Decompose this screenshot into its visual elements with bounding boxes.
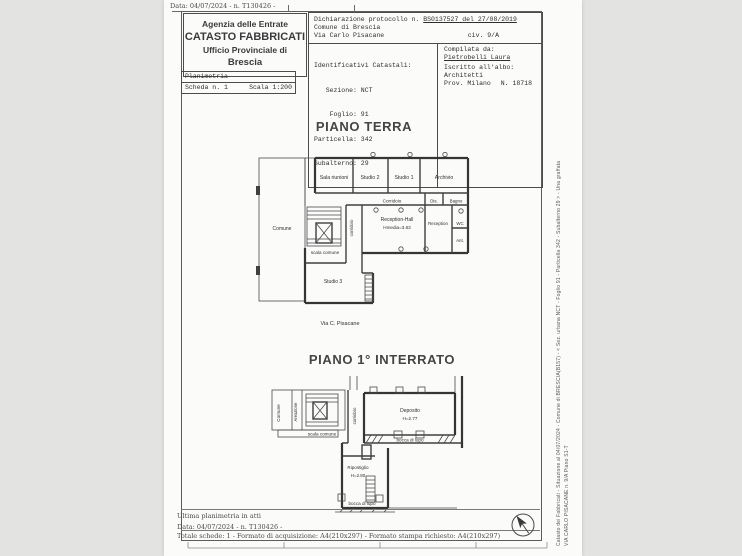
declaration-protocol: BS0137527 del 27/08/2019: [423, 16, 517, 24]
room-label-ripostiglio-height: H=2.80: [351, 473, 366, 478]
room-label-studio3: Studio 3: [324, 279, 343, 285]
identificativi-sezione: Sezione: NCT: [314, 87, 432, 95]
scanned-document-sheet: Data: 04/07/2024 - n. T130426 - Agenzia …: [164, 0, 582, 556]
room-label-archivio: Archivio: [435, 175, 454, 181]
registration-tick: [354, 5, 355, 12]
wall-notch: [256, 266, 260, 275]
room-label-scala-comune: scala comune: [311, 250, 340, 255]
room-label-sala-riunioni: Sala riunioni: [320, 175, 349, 181]
piano-interrato-title: PIANO 1° INTERRATO: [282, 352, 482, 367]
label-bocca-di-lupo-right: bocca di lupo: [396, 438, 424, 443]
room-label-studio2: Studio 2: [360, 175, 379, 181]
room-label-reception-hall: Reception-Hall: [381, 217, 414, 223]
compiler-name: Pietrobelli Laura: [444, 54, 536, 62]
room-label-dis: Dis.: [430, 199, 438, 204]
piano-interrato-floorplan: Comune Areazione scala comune corridoio …: [240, 368, 520, 518]
agency-name: Agenzia delle Entrate: [184, 19, 306, 29]
room-label-scala-comune: scala comune: [308, 432, 337, 437]
registration-tick: [172, 11, 181, 12]
identificativi-title: Identificativi Catastali:: [314, 62, 432, 70]
wall-stubs: [350, 376, 455, 393]
staircase-icon: [306, 394, 338, 426]
scale-ruler: [164, 540, 582, 554]
landing-walls: [305, 158, 315, 206]
staircase-icon: [307, 207, 341, 246]
room-label-studio1: Studio 1: [394, 175, 413, 181]
street-caption: Via C. Pisacane: [320, 321, 359, 327]
office-city: Brescia: [184, 57, 306, 68]
compiler-prov: Prov. Milano: [444, 80, 491, 88]
side-caption-address: VIA CARLO PISACANE n. 9/A Piano S1-T: [564, 445, 570, 546]
street-line: Via Carlo Pisacane: [314, 32, 384, 40]
room-label-ant: Ant.: [456, 238, 464, 243]
comune-line: Comune di Brescia: [314, 24, 380, 32]
room-label-deposito: Deposito: [400, 408, 420, 414]
footer-divider: [181, 509, 540, 510]
side-caption-cadastre: Catasto dei Fabbricati - Situazione al 0…: [556, 161, 562, 546]
scheda-label: Scheda n. 1: [185, 84, 228, 92]
planimetria-box: Planimetria Scheda n. 1 Scala 1:200: [181, 71, 296, 94]
room-label-reception: Reception: [428, 221, 448, 226]
room-label-areazione: Areazione: [293, 402, 298, 422]
declaration-top-section: Dichiarazione protocollo n. BS0137527 de…: [309, 13, 542, 43]
room-label-wc: WC: [456, 221, 463, 226]
room-label-corridoio: Corridoio: [383, 199, 402, 204]
comune-area-outline: [272, 390, 345, 430]
screenshot-root: { "document": { "top_note": "Data: 04/07…: [0, 0, 742, 556]
room-label-corridoio: corridoio: [352, 407, 357, 424]
room-label-deposito-height: H=2.77: [403, 416, 418, 421]
compiler-number: N. 18718: [501, 80, 532, 88]
agency-header-box: Agenzia delle Entrate CATASTO FABBRICATI…: [183, 13, 307, 77]
label-bocca-di-lupo-bottom: bocca di lupo: [348, 501, 376, 506]
declaration-label: Dichiarazione protocollo n.: [314, 16, 419, 24]
room-label-ripostiglio: Ripostiglio: [347, 465, 369, 470]
office-line: Ufficio Provinciale di: [184, 45, 306, 55]
piano-terra-floorplan: Sala riunioni Studio 2 Studio 1 Archivio…: [240, 148, 520, 330]
piano-terra-title: PIANO TERRA: [274, 119, 454, 134]
albo-label: Iscritto all'albo:: [444, 64, 536, 72]
room-label-reception-hall-height: Hmedia=3.63: [383, 225, 411, 230]
registration-tick: [288, 5, 289, 12]
room-label-bagno: Bagno: [450, 199, 463, 204]
window-symbols: [338, 387, 425, 502]
scan-date-note: Data: 04/07/2024 - n. T130426 -: [170, 2, 275, 10]
civic-number: civ. 9/A: [468, 32, 499, 40]
footer-totale-schede: Totale schede: 1 - Formato di acquisizio…: [177, 532, 500, 540]
identificativi-particella: Particella: 342: [314, 136, 432, 144]
planimetria-label: Planimetria: [182, 72, 295, 83]
room-label-comune: Comune: [276, 404, 281, 422]
footer-ultima-planimetria: Ultima planimetria in atti: [177, 512, 261, 520]
small-staircase-icon: [365, 275, 373, 301]
shaft-stub: [362, 445, 371, 459]
catasto-title: CATASTO FABBRICATI: [184, 31, 306, 43]
wall-notch: [256, 186, 260, 195]
small-staircase-icon: [366, 476, 375, 502]
room-label-corridoio-vertical: corridoio: [349, 219, 354, 236]
interior-walls: [342, 390, 462, 456]
scala-label: Scala 1:200: [249, 84, 292, 92]
north-arrow-icon: [508, 510, 538, 540]
compiler-label: Compilata da:: [444, 46, 536, 54]
albo-value: Architetti: [444, 72, 536, 80]
room-label-comune: Comune: [273, 226, 292, 232]
